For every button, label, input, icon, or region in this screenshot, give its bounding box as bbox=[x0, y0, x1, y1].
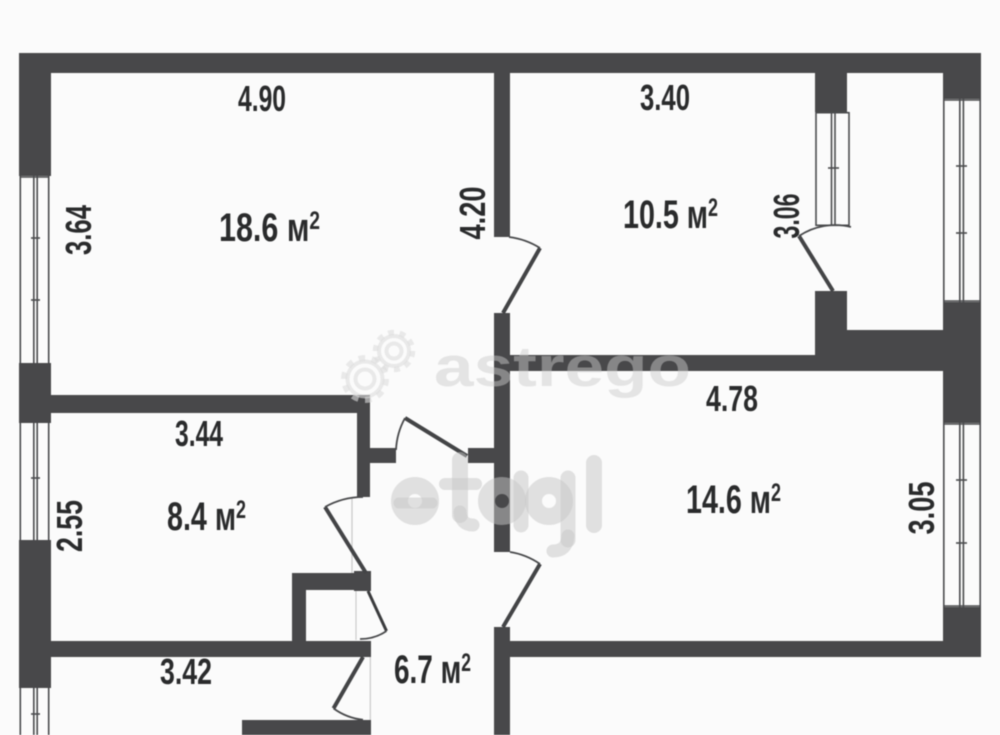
svg-text:3.64: 3.64 bbox=[58, 205, 99, 255]
svg-text:4.90: 4.90 bbox=[238, 78, 286, 119]
svg-text:3.44: 3.44 bbox=[175, 413, 223, 454]
svg-text:3.40: 3.40 bbox=[640, 77, 690, 118]
svg-text:3.06: 3.06 bbox=[766, 194, 807, 239]
svg-text:8.4 м2: 8.4 м2 bbox=[167, 495, 246, 539]
svg-text:4.78: 4.78 bbox=[706, 378, 758, 419]
svg-text:6.7 м2: 6.7 м2 bbox=[394, 648, 471, 692]
svg-text:10.5 м2: 10.5 м2 bbox=[623, 193, 718, 237]
svg-text:astrego: astrego bbox=[434, 335, 691, 399]
svg-text:18.6 м2: 18.6 м2 bbox=[219, 206, 320, 250]
svg-text:14.6 м2: 14.6 м2 bbox=[686, 478, 781, 522]
svg-text:3.42: 3.42 bbox=[160, 651, 212, 692]
svg-text:2.55: 2.55 bbox=[49, 500, 90, 552]
svg-text:3.05: 3.05 bbox=[901, 482, 942, 535]
svg-text:4.20: 4.20 bbox=[452, 187, 493, 240]
